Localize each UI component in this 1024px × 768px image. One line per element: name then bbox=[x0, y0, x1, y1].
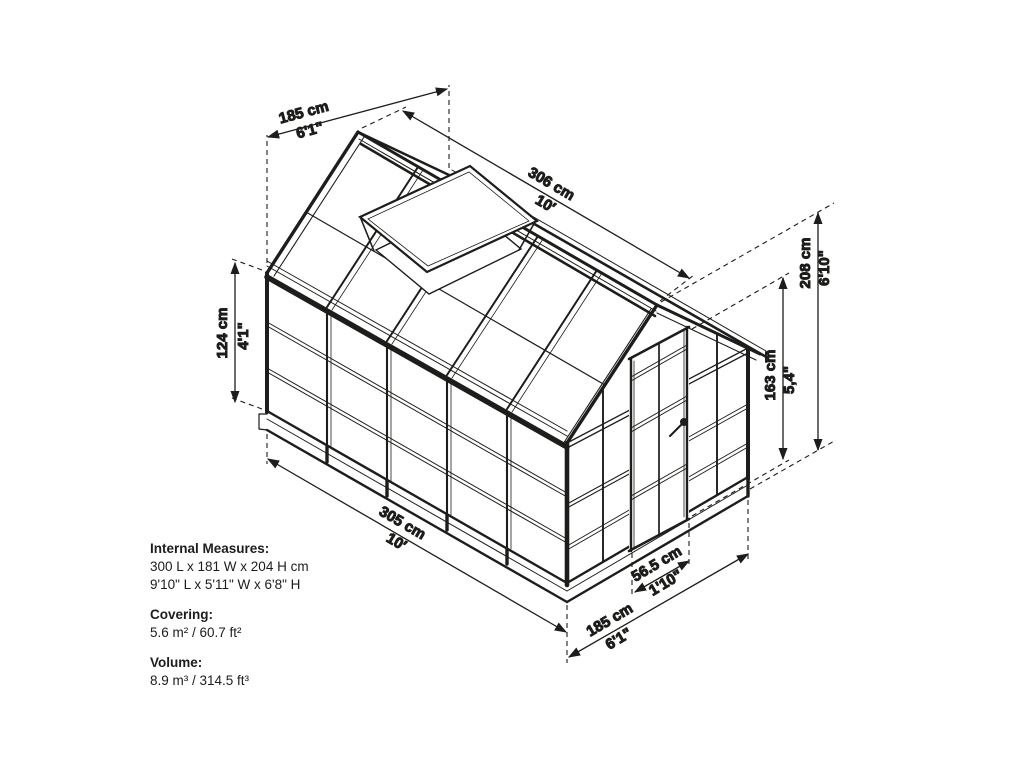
dim-door-height-cm: 163 cm bbox=[762, 350, 779, 401]
volume-value: 8.9 m³ / 314.5 ft³ bbox=[150, 672, 430, 690]
covering-section: Covering: 5.6 m² / 60.7 ft² bbox=[150, 606, 430, 642]
dim-total-height-imperial: 6'10" bbox=[816, 250, 833, 286]
dim-wall-height-imperial: 4'1" bbox=[235, 322, 252, 349]
specifications-panel: Internal Measures: 300 L x 181 W x 204 H… bbox=[150, 540, 430, 702]
greenhouse-dimension-diagram: 185 cm 6'1" 306 cm 10′ 124 cm 4'1" 208 c… bbox=[0, 0, 1024, 768]
internal-measures-section: Internal Measures: 300 L x 181 W x 204 H… bbox=[150, 540, 430, 594]
dim-wall-height-cm: 124 cm bbox=[214, 308, 231, 359]
door bbox=[629, 326, 689, 552]
covering-value: 5.6 m² / 60.7 ft² bbox=[150, 624, 430, 642]
dim-door-height-imperial: 5,4" bbox=[781, 366, 798, 394]
dim-total-height-cm: 208 cm bbox=[797, 238, 814, 289]
greenhouse-structure bbox=[259, 132, 768, 602]
volume-section: Volume: 8.9 m³ / 314.5 ft³ bbox=[150, 654, 430, 690]
internal-measures-label: Internal Measures: bbox=[150, 540, 430, 558]
internal-measures-imperial: 9'10" L x 5'11" W x 6'8" H bbox=[150, 576, 430, 594]
covering-label: Covering: bbox=[150, 606, 430, 624]
volume-label: Volume: bbox=[150, 654, 430, 672]
internal-measures-metric: 300 L x 181 W x 204 H cm bbox=[150, 558, 430, 576]
